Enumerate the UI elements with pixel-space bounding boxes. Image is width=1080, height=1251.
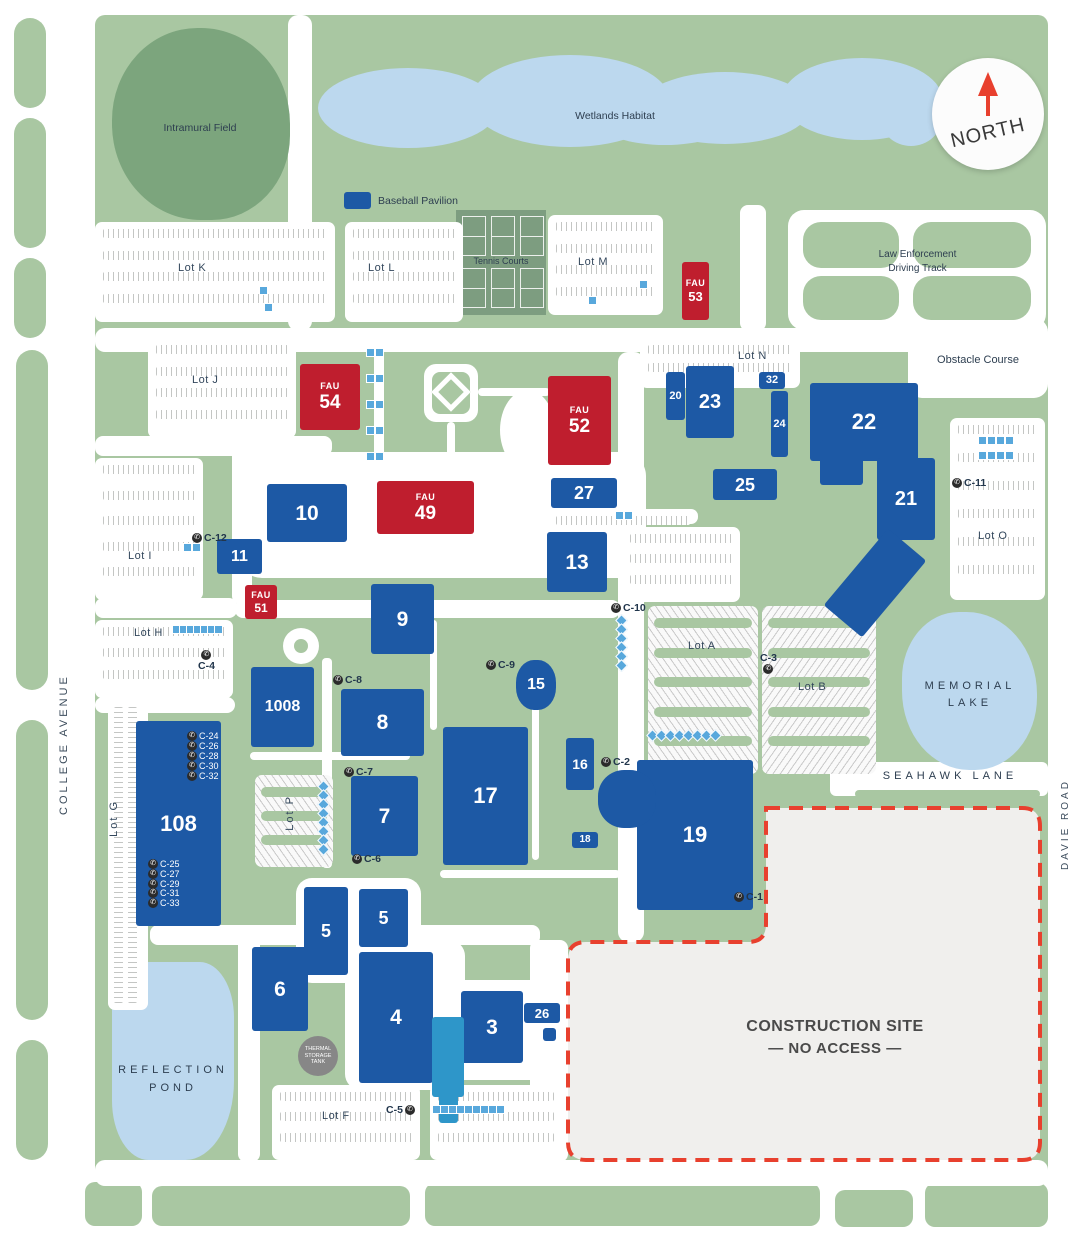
lot-n-bar-0 — [648, 345, 792, 354]
lot-f1[interactable] — [272, 1085, 420, 1160]
building-b3-annex[interactable] — [543, 1028, 556, 1041]
building-b15-number: 15 — [527, 677, 545, 693]
accessible-parking-marker-acc-fau54-east-3b — [375, 426, 384, 435]
callbox-c-31[interactable]: ✆C-31 — [148, 888, 180, 898]
building-b21[interactable]: 21 — [877, 458, 935, 540]
obstacle-course-label: Obstacle Course — [918, 354, 1038, 366]
building-b4-number: 4 — [390, 1007, 402, 1028]
road-le-entry — [740, 205, 766, 331]
callbox-c-33-icon: ✆ — [148, 898, 158, 908]
callbox-c-1[interactable]: ✆C-1 — [734, 891, 763, 903]
building-b17[interactable]: 17 — [443, 727, 528, 865]
building-b8[interactable]: 8 — [341, 689, 424, 756]
accessible-parking-marker-acc-22-east-r1-1 — [987, 436, 996, 445]
callbox-c-25[interactable]: ✆C-25 — [148, 859, 180, 869]
callbox-c-3[interactable]: C-3✆ — [760, 652, 777, 674]
callbox-c-2-icon: ✆ — [601, 757, 611, 767]
lot-b-divider-1 — [768, 648, 870, 658]
lot-k-bar-0 — [103, 229, 327, 238]
accessible-parking-marker-acc-22-east-r2-3 — [1005, 451, 1014, 460]
building-b26-number: 26 — [535, 1007, 549, 1020]
lot-13e-bar-2 — [630, 575, 732, 584]
callbox-c-3-label: C-3 — [760, 652, 777, 664]
callbox-c-7[interactable]: ✆C-7 — [344, 766, 373, 778]
campus-map: Intramural Field Wetlands Habitat Baseba… — [0, 0, 1080, 1251]
arc-52 — [500, 390, 555, 470]
callbox-c-28[interactable]: ✆C-28 — [187, 751, 219, 761]
callbox-c-5-label: C-5 — [386, 1104, 403, 1116]
accessible-parking-marker-acc-22-east-r1-2 — [996, 436, 1005, 445]
callbox-c-8-icon: ✆ — [333, 675, 343, 685]
callbox-c-9[interactable]: ✆C-9 — [486, 659, 515, 671]
bottom-block-1 — [152, 1186, 410, 1226]
seahawk-median — [855, 790, 1040, 798]
building-b32[interactable]: 32 — [759, 372, 785, 389]
lot-m-bar-0 — [556, 222, 655, 231]
building-fau-52-number: 52 — [569, 417, 590, 436]
building-b11[interactable]: 11 — [217, 539, 262, 574]
lot-l-bar-0 — [353, 229, 455, 238]
callbox-c-27-label: C-27 — [160, 869, 180, 879]
callbox-c-26-icon: ✆ — [187, 741, 197, 751]
lot-13e[interactable] — [622, 527, 740, 602]
building-fau-52[interactable]: FAU52 — [548, 376, 611, 465]
callbox-c-11[interactable]: ✆C-11 — [952, 477, 986, 489]
callbox-c-7-icon: ✆ — [344, 767, 354, 777]
tennis-court-5 — [520, 268, 544, 308]
building-b5a-number: 5 — [321, 922, 331, 940]
lot-p-label: Lot P — [284, 795, 296, 831]
lot-g-bar-0 — [114, 707, 123, 1003]
building-b32-number: 32 — [766, 375, 778, 386]
accessible-parking-marker-acc-c12-pair-1 — [192, 543, 201, 552]
tennis-court-3 — [462, 268, 486, 308]
wetlands-label: Wetlands Habitat — [555, 110, 675, 122]
building-fau-53[interactable]: FAU53 — [682, 262, 709, 320]
callbox-c-30-label: C-30 — [199, 761, 219, 771]
bottom-block-4 — [925, 1183, 1048, 1227]
callbox-c-26-label: C-26 — [199, 741, 219, 751]
callbox-c-25-label: C-25 — [160, 859, 180, 869]
bottom-block-3 — [835, 1190, 913, 1227]
callbox-c-11-label: C-11 — [964, 477, 986, 489]
accessible-parking-marker-acc-22-east-r2-1 — [987, 451, 996, 460]
lot-i-bar-0 — [103, 465, 195, 474]
accessible-parking-marker-acc-fau54-east-1 — [366, 374, 375, 383]
building-b20-number: 20 — [669, 391, 681, 402]
building-b6[interactable]: 6 — [252, 947, 308, 1031]
accessible-parking-marker-acc-fau54-east-4b — [375, 452, 384, 461]
callbox-c-25-icon: ✆ — [148, 859, 158, 869]
lot-g-label: Lot G — [108, 800, 120, 837]
accessible-parking-marker-acc-22-east-r2-0 — [978, 451, 987, 460]
driving-track-island-2 — [803, 276, 899, 320]
building-b7-number: 7 — [379, 806, 391, 827]
road-bottom — [95, 1160, 1048, 1186]
accessible-parking-marker-acc-fau54-east-1b — [375, 374, 384, 383]
building-b22-wing[interactable] — [820, 440, 863, 485]
bottom-block-2 — [425, 1183, 820, 1226]
callbox-c-2-label: C-2 — [613, 756, 630, 768]
north-compass: NORTH — [932, 58, 1044, 170]
path-4 — [532, 690, 539, 860]
accessible-parking-marker-acc-fau54-east-0 — [366, 348, 375, 357]
callbox-c-28-icon: ✆ — [187, 751, 197, 761]
callbox-c-8-label: C-8 — [345, 674, 362, 686]
lot-o[interactable] — [950, 418, 1045, 600]
accessible-parking-marker-acc-22-east-r2-2 — [996, 451, 1005, 460]
callbox-c-4-icon: ✆ — [201, 650, 211, 660]
building-walkway-connector[interactable] — [432, 1017, 464, 1097]
accessible-parking-marker-acc-c12-pair-0 — [183, 543, 192, 552]
callbox-c-4-label: C-4 — [198, 660, 215, 672]
building-b23[interactable]: 23 — [686, 366, 734, 438]
accessible-parking-marker-acc-fau54-east-4 — [366, 452, 375, 461]
accessible-parking-marker-acc-lotm-2-0 — [588, 296, 597, 305]
building-b5b-number: 5 — [378, 909, 388, 927]
lot-b-divider-3 — [768, 707, 870, 717]
lot-a-divider-3 — [654, 707, 752, 717]
north-label: NORTH — [931, 110, 1045, 158]
building-b21-number: 21 — [895, 489, 917, 509]
building-b18[interactable]: 18 — [572, 832, 598, 848]
building-b19[interactable]: 19 — [637, 760, 753, 910]
lot-a-divider-2 — [654, 677, 752, 687]
lot-j-bar-2 — [156, 388, 288, 397]
accessible-parking-marker-acc-lotf-east-8 — [496, 1105, 505, 1114]
tennis-court-2 — [520, 216, 544, 256]
north-arrow-icon — [978, 72, 998, 96]
lot-m-label: Lot M — [578, 256, 608, 268]
building-b4[interactable]: 4 — [359, 952, 433, 1083]
building-b25[interactable]: 25 — [713, 469, 777, 500]
left-median-0 — [14, 18, 46, 108]
building-b3[interactable]: 3 — [461, 991, 523, 1063]
davie-road-label: DAVIE ROAD — [1060, 750, 1071, 870]
lot-h-label: Lot H — [134, 627, 163, 639]
path-8 — [440, 870, 620, 878]
memorial-lake-label: MEMORIAL LAKE — [910, 678, 1030, 711]
left-median-1 — [14, 118, 46, 248]
building-b7[interactable]: 7 — [351, 776, 418, 856]
callbox-c-6[interactable]: ✆C-6 — [352, 853, 381, 865]
callbox-c-28-label: C-28 — [199, 751, 219, 761]
building-b8-number: 8 — [377, 712, 389, 733]
callbox-c-27-icon: ✆ — [148, 869, 158, 879]
thermal-storage-tank: THERMAL STORAGE TANK — [298, 1036, 338, 1076]
tennis-courts-label: Tennis Courts — [458, 256, 544, 266]
building-b5b[interactable]: 5 — [359, 889, 408, 947]
accessible-parking-marker-acc-lotk-1-0 — [259, 286, 268, 295]
lot-a-divider-0 — [654, 618, 752, 628]
intramural-field-label: Intramural Field — [140, 122, 260, 134]
callbox-c-6-icon: ✆ — [352, 854, 362, 864]
building-b27[interactable]: 27 — [551, 478, 617, 508]
accessible-parking-marker-acc-fau54-east-3 — [366, 426, 375, 435]
building-fau-53-fau-label: FAU — [686, 279, 706, 288]
college-avenue-label: COLLEGE AVENUE — [58, 645, 70, 815]
left-median-3 — [16, 350, 48, 690]
lot-o-bar-0 — [958, 425, 1037, 434]
building-b3-number: 3 — [486, 1017, 498, 1038]
lot-f1-bar-2 — [280, 1133, 412, 1142]
lot-i-label: Lot I — [128, 550, 152, 562]
lot-k[interactable] — [95, 222, 335, 322]
path-2 — [478, 388, 550, 396]
building-b13[interactable]: 13 — [547, 532, 607, 592]
building-fau-49-fau-label: FAU — [416, 493, 436, 502]
callbox-c-5-icon: ✆ — [405, 1105, 415, 1115]
building-b24[interactable]: 24 — [771, 391, 788, 457]
lot-k-bar-1 — [103, 251, 327, 260]
callbox-c-2[interactable]: ✆C-2 — [601, 756, 630, 768]
callbox-c-27[interactable]: ✆C-27 — [148, 869, 180, 879]
callbox-c-1-icon: ✆ — [734, 892, 744, 902]
building-fau-51-fau-label: FAU — [251, 591, 271, 600]
callbox-c-11-icon: ✆ — [952, 478, 962, 488]
callbox-c-7-label: C-7 — [356, 766, 373, 778]
lot-b-divider-4 — [768, 736, 870, 746]
accessible-parking-marker-acc-22-east-r1-0 — [978, 436, 987, 445]
bottom-block-0 — [85, 1182, 142, 1226]
callbox-c-5[interactable]: C-5✆ — [386, 1104, 415, 1116]
callbox-c-10-icon: ✆ — [611, 603, 621, 613]
roundabout-island — [294, 639, 308, 653]
lot-l-bar-3 — [353, 294, 455, 303]
building-b9-number: 9 — [397, 609, 409, 630]
lot-o-bar-5 — [958, 565, 1037, 574]
callbox-c-33-label: C-33 — [160, 898, 180, 908]
building-b108-number: 108 — [160, 813, 197, 835]
driving-track-island-3 — [913, 276, 1031, 320]
lot-f-label: Lot F — [322, 1110, 350, 1122]
building-b16-number: 16 — [572, 757, 588, 771]
accessible-parking-marker-acc-fau54-east-0b — [375, 348, 384, 357]
building-b26[interactable]: 26 — [524, 1003, 560, 1023]
callbox-c-24-icon: ✆ — [187, 731, 197, 741]
building-b1008[interactable]: 1008 — [251, 667, 314, 747]
callbox-c-1-label: C-1 — [746, 891, 763, 903]
tennis-court-0 — [462, 216, 486, 256]
callbox-c-26[interactable]: ✆C-26 — [187, 741, 219, 751]
building-fau-51[interactable]: FAU51 — [245, 585, 277, 619]
callbox-c-10[interactable]: ✆C-10 — [611, 602, 646, 614]
north-arrow-tail — [986, 96, 990, 116]
building-b23-number: 23 — [699, 392, 721, 412]
lot-i-bar-1 — [103, 491, 195, 500]
building-fau-54[interactable]: FAU54 — [300, 364, 360, 430]
lot-i[interactable] — [95, 458, 203, 600]
building-baseball-pavilion-icon[interactable] — [344, 192, 371, 209]
callbox-c-10-label: C-10 — [623, 602, 646, 614]
lot-k-bar-2 — [103, 272, 327, 281]
lot-i-bar-2 — [103, 516, 195, 525]
lot-m-bar-1 — [556, 244, 655, 253]
lot-l-label: Lot L — [368, 262, 395, 274]
law-enforcement-label: Law Enforcement Driving Track — [830, 248, 1005, 276]
lot-k-bar-3 — [103, 294, 327, 303]
callbox-c-32-label: C-32 — [199, 771, 219, 781]
lot-f1-bar-0 — [280, 1092, 412, 1101]
baseball-pavilion-label: Baseball Pavilion — [378, 195, 458, 207]
callbox-c-3-icon: ✆ — [763, 664, 773, 674]
road-loth-n — [95, 598, 237, 618]
building-b6-number: 6 — [274, 979, 286, 1000]
callbox-c-30-icon: ✆ — [187, 761, 197, 771]
accessible-parking-marker-acc-lotk-2-0 — [264, 303, 273, 312]
building-b22-number: 22 — [852, 411, 876, 433]
building-fau-49-number: 49 — [415, 504, 436, 523]
seahawk-lane-label: SEAHAWK LANE — [855, 770, 1045, 782]
callbox-c-12[interactable]: ✆C-12 — [192, 532, 227, 544]
tennis-court-1 — [491, 216, 515, 256]
lot-13e-bar-0 — [630, 534, 732, 543]
building-b19-rotunda[interactable] — [598, 770, 656, 828]
building-b1008-number: 1008 — [265, 699, 301, 715]
left-median-2 — [14, 258, 46, 338]
building-b5a[interactable]: 5 — [304, 887, 348, 975]
callbox-c-12-icon: ✆ — [192, 533, 202, 543]
left-median-4 — [16, 720, 48, 1020]
building-fau-52-fau-label: FAU — [570, 406, 590, 415]
lot-j-bar-1 — [156, 367, 288, 376]
lot-b-label: Lot B — [798, 681, 826, 693]
building-b16[interactable]: 16 — [566, 738, 594, 790]
building-fau-49[interactable]: FAU49 — [377, 481, 474, 534]
building-b19-number: 19 — [683, 824, 707, 846]
building-b20[interactable]: 20 — [666, 372, 685, 420]
callbox-c-33[interactable]: ✆C-33 — [148, 898, 180, 908]
lot-l[interactable] — [345, 222, 463, 322]
callbox-c-4[interactable]: ✆C-4 — [198, 650, 215, 672]
building-fau-51-number: 51 — [254, 602, 267, 614]
accessible-parking-marker-acc-22-east-r1-3 — [1005, 436, 1014, 445]
building-fau-54-fau-label: FAU — [320, 382, 340, 391]
lot-i-bar-4 — [103, 567, 195, 576]
lot-l-bar-1 — [353, 251, 455, 260]
left-median-5 — [16, 1040, 48, 1160]
building-b10-number: 10 — [295, 503, 318, 524]
building-b27-number: 27 — [574, 484, 594, 502]
lot-13e-bar-1 — [630, 554, 732, 563]
callbox-c-24[interactable]: ✆C-24 — [187, 731, 219, 741]
building-fau-53-number: 53 — [688, 290, 702, 303]
building-b25-number: 25 — [735, 476, 755, 494]
accessible-parking-marker-acc-fau54-east-2b — [375, 400, 384, 409]
building-b15[interactable]: 15 — [516, 660, 556, 710]
callbox-c-9-label: C-9 — [498, 659, 515, 671]
building-b18-number: 18 — [579, 835, 590, 845]
lot-j-bar-3 — [156, 410, 288, 419]
building-b13-number: 13 — [565, 552, 588, 573]
callbox-c-31-icon: ✆ — [148, 888, 158, 898]
lot-j-label: Lot J — [192, 374, 218, 386]
lot-o-label: Lot O — [978, 530, 1007, 542]
lot-f2-bar-2 — [438, 1133, 554, 1142]
lot-n-label: Lot N — [738, 350, 767, 362]
accessible-parking-marker-acc-fau54-east-2 — [366, 400, 375, 409]
building-b9[interactable]: 9 — [371, 584, 434, 654]
accessible-parking-marker-acc-loth-north-6 — [214, 625, 223, 634]
lot-a[interactable] — [648, 606, 758, 774]
lot-j[interactable] — [148, 338, 296, 438]
callbox-c-32[interactable]: ✆C-32 — [187, 771, 219, 781]
building-b10[interactable]: 10 — [267, 484, 347, 542]
reflection-pond-label: REFLECTION POND — [108, 1062, 238, 1097]
construction-label: CONSTRUCTION SITE — NO ACCESS — — [700, 1018, 970, 1057]
callbox-c-8[interactable]: ✆C-8 — [333, 674, 362, 686]
callbox-c-6-label: C-6 — [364, 853, 381, 865]
callbox-c-32-icon: ✆ — [187, 771, 197, 781]
building-fau-54-number: 54 — [319, 393, 340, 412]
lot-o-bar-3 — [958, 509, 1037, 518]
callbox-c-9-icon: ✆ — [486, 660, 496, 670]
callbox-c-30[interactable]: ✆C-30 — [187, 761, 219, 771]
building-b24-number: 24 — [773, 419, 785, 430]
callbox-c-31-label: C-31 — [160, 888, 180, 898]
building-b11-number: 11 — [231, 549, 248, 565]
building-b17-number: 17 — [473, 785, 497, 807]
callbox-c-12-label: C-12 — [204, 532, 227, 544]
lot-k-label: Lot K — [178, 262, 206, 274]
accessible-parking-marker-acc-27s-pair-1 — [624, 511, 633, 520]
accessible-parking-marker-acc-27s-pair-0 — [615, 511, 624, 520]
lot-j-bar-0 — [156, 345, 288, 354]
accessible-parking-marker-acc-lotm-1-0 — [639, 280, 648, 289]
tennis-court-4 — [491, 268, 515, 308]
callbox-c-24-label: C-24 — [199, 731, 219, 741]
path-3 — [447, 422, 455, 484]
lot-a-label: Lot A — [688, 640, 716, 652]
